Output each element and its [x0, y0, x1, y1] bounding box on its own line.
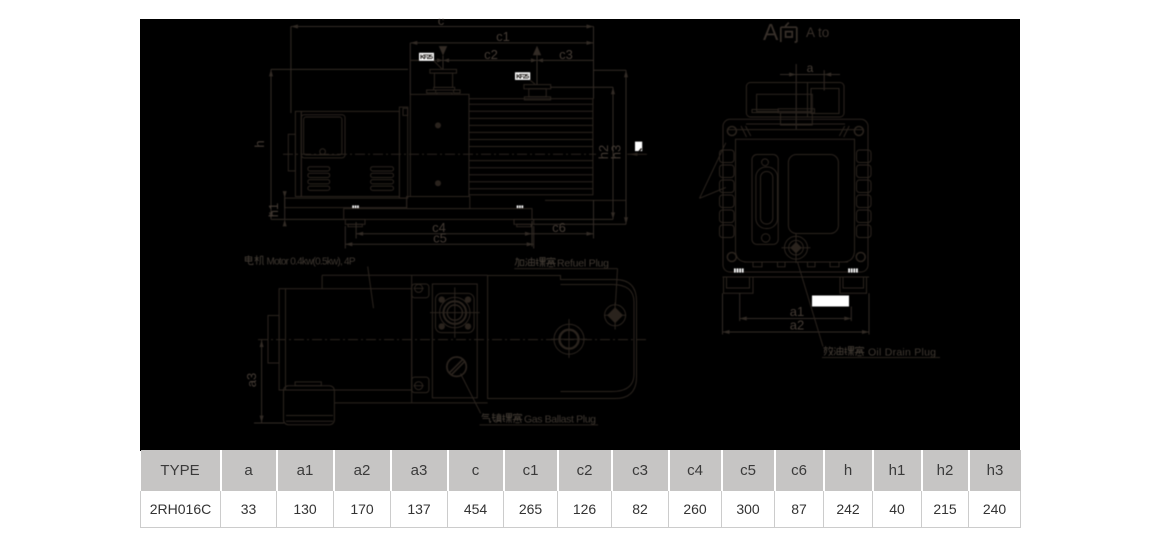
svg-text:c6: c6 [552, 220, 566, 235]
svg-text:Gas Ballast Plug: Gas Ballast Plug [524, 413, 596, 425]
svg-text:c1: c1 [496, 29, 510, 44]
svg-text:c: c [438, 19, 445, 28]
svg-text:c2: c2 [484, 47, 498, 62]
svg-text:h: h [252, 140, 267, 147]
svg-text:c5: c5 [433, 231, 447, 246]
svg-text:h1: h1 [266, 203, 281, 217]
svg-text:a: a [807, 61, 814, 75]
svg-text:h3: h3 [609, 145, 624, 159]
svg-text:a3: a3 [244, 373, 259, 387]
svg-text:a2: a2 [790, 318, 804, 333]
svg-text:c3: c3 [559, 47, 573, 62]
svg-text:KF25: KF25 [516, 73, 529, 80]
svg-text:A to: A to [806, 25, 829, 40]
svg-text:KF25: KF25 [420, 54, 433, 61]
svg-text:Oil Drain Plug: Oil Drain Plug [868, 346, 936, 358]
svg-text:A: A [763, 19, 779, 45]
svg-text:Motor 0.4kw(0.5kw), 4P: Motor 0.4kw(0.5kw), 4P [267, 256, 356, 267]
svg-text:Refuel Plug: Refuel Plug [557, 257, 609, 269]
